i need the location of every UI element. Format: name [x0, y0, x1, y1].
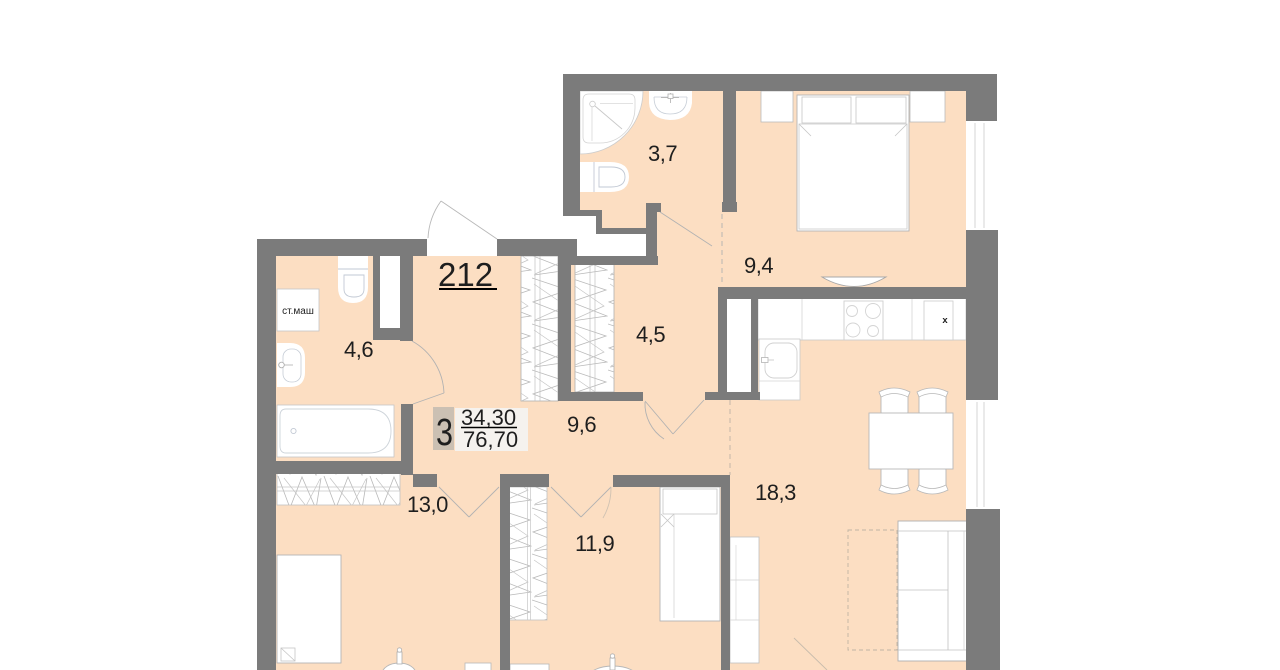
svg-text:3: 3 [436, 412, 453, 454]
svg-text:x: x [942, 315, 948, 326]
svg-text:11,9: 11,9 [575, 531, 614, 556]
svg-text:212: 212 [438, 256, 493, 293]
svg-text:4,5: 4,5 [636, 322, 665, 347]
svg-text:4,6: 4,6 [344, 337, 373, 362]
svg-text:13,0: 13,0 [407, 492, 448, 517]
svg-text:ст.маш: ст.маш [282, 306, 314, 317]
svg-text:18,3: 18,3 [755, 480, 796, 505]
svg-text:9,6: 9,6 [567, 412, 596, 437]
svg-text:76,70: 76,70 [463, 427, 518, 452]
svg-text:9,4: 9,4 [744, 253, 773, 278]
svg-text:3,7: 3,7 [648, 141, 677, 166]
